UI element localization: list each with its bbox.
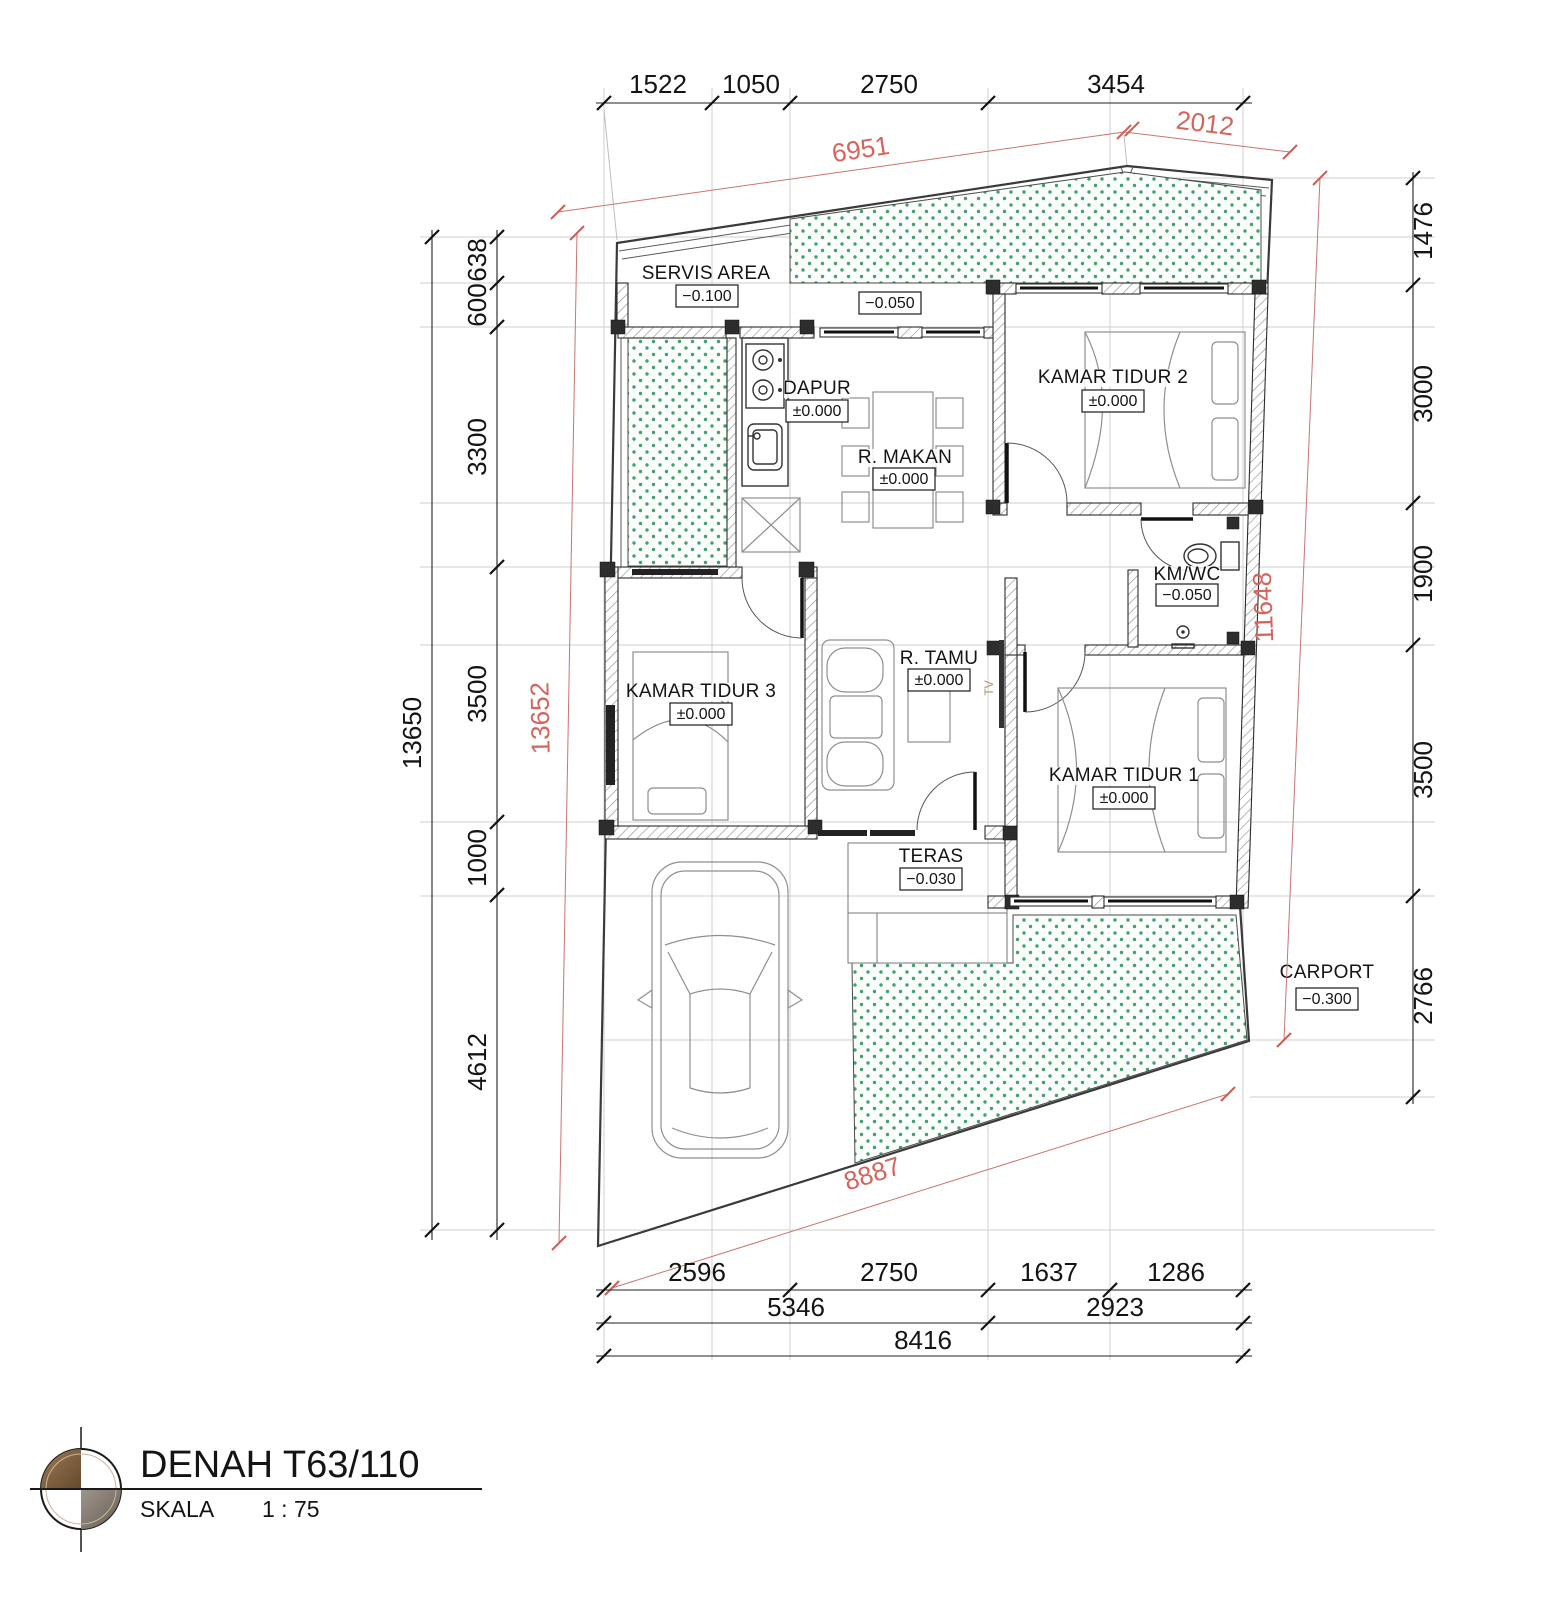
scale-value: 1 : 75	[262, 1496, 320, 1522]
svg-text:1476: 1476	[1408, 202, 1438, 260]
svg-text:2766: 2766	[1408, 967, 1438, 1025]
svg-text:±0.000: ±0.000	[880, 471, 929, 488]
window	[606, 705, 615, 785]
svg-text:1900: 1900	[1408, 545, 1438, 603]
label-teras: TERAS −0.030	[899, 846, 964, 890]
svg-text:−0.100: −0.100	[682, 288, 731, 305]
svg-text:3300: 3300	[462, 418, 492, 476]
garden-courtyard	[628, 338, 727, 566]
threshold-bar	[870, 830, 915, 836]
label-kamar-tidur-3: KAMAR TIDUR 3 ±0.000	[626, 681, 776, 725]
svg-text:KAMAR TIDUR 1: KAMAR TIDUR 1	[1049, 765, 1199, 786]
svg-text:DAPUR: DAPUR	[783, 378, 851, 399]
svg-text:3000: 3000	[1408, 365, 1438, 423]
svg-text:KAMAR TIDUR 3: KAMAR TIDUR 3	[626, 681, 776, 702]
drawing-title: DENAH T63/110	[140, 1444, 420, 1486]
label-servis-area: SERVIS AREA −0.100	[642, 263, 771, 307]
svg-text:−0.050: −0.050	[865, 295, 914, 312]
window	[922, 328, 984, 337]
svg-text:1286: 1286	[1147, 1257, 1205, 1287]
door-bedroom2	[1007, 443, 1067, 503]
svg-text:638: 638	[462, 238, 492, 281]
svg-text:1522: 1522	[629, 69, 687, 99]
svg-text:3500: 3500	[1408, 741, 1438, 799]
label-r-tamu: R. TAMU ±0.000	[898, 648, 980, 691]
svg-text:−0.030: −0.030	[906, 871, 955, 888]
title-block: DENAH T63/110 SKALA 1 : 75	[30, 1427, 482, 1552]
scale-label: SKALA	[140, 1496, 215, 1522]
sofa-set	[822, 640, 894, 790]
floor-plan-drawing: TV SERVIS AREA −0.100	[0, 0, 1555, 1599]
door-main-entry	[917, 772, 975, 830]
garden-bottom	[852, 915, 1247, 1163]
svg-text:2012: 2012	[1175, 105, 1236, 142]
car	[638, 862, 802, 1158]
svg-text:3454: 3454	[1087, 69, 1145, 99]
door-bedroom3	[742, 578, 802, 638]
dimension-chain-left: 13650 638 600 3300 3500 1000 4612 13652	[397, 226, 584, 1250]
svg-text:±0.000: ±0.000	[677, 706, 726, 723]
label-kamar-tidur-1: KAMAR TIDUR 1 ±0.000	[1049, 765, 1199, 809]
svg-text:4612: 4612	[462, 1033, 492, 1091]
label-side-yard: −0.050	[859, 292, 921, 314]
svg-text:CARPORT: CARPORT	[1280, 962, 1375, 983]
svg-text:13652: 13652	[524, 682, 555, 755]
garden-top	[790, 172, 1261, 283]
kitchen-counter	[742, 338, 788, 486]
svg-text:−0.050: −0.050	[1162, 587, 1211, 604]
svg-text:±0.000: ±0.000	[915, 672, 964, 689]
svg-text:6951: 6951	[830, 130, 892, 168]
svg-text:R. TAMU: R. TAMU	[900, 648, 978, 669]
svg-text:8416: 8416	[894, 1325, 952, 1355]
svg-text:5346: 5346	[767, 1292, 825, 1322]
svg-text:TERAS: TERAS	[899, 846, 964, 867]
svg-text:1050: 1050	[722, 69, 780, 99]
window	[1104, 897, 1216, 906]
svg-text:SERVIS AREA: SERVIS AREA	[642, 263, 771, 284]
svg-text:±0.000: ±0.000	[793, 403, 842, 420]
coffee-table	[908, 690, 950, 742]
window	[1140, 284, 1228, 293]
threshold-bar	[632, 569, 718, 575]
threshold-bar	[818, 830, 867, 836]
svg-text:1637: 1637	[1020, 1257, 1078, 1287]
svg-text:2596: 2596	[668, 1257, 726, 1287]
svg-text:R. MAKAN: R. MAKAN	[858, 447, 952, 468]
svg-text:−0.300: −0.300	[1302, 991, 1351, 1008]
svg-text:KM/WC: KM/WC	[1154, 564, 1221, 585]
tv-label: TV	[982, 680, 996, 695]
svg-text:1000: 1000	[462, 829, 492, 887]
svg-text:13650: 13650	[397, 697, 427, 769]
window	[1010, 897, 1092, 906]
shaft-box	[742, 498, 800, 552]
bed-bedroom3	[633, 652, 728, 820]
dimension-chain-top: 1522 1050 2750 3454	[596, 69, 1252, 110]
svg-text:8887: 8887	[840, 1150, 904, 1196]
svg-text:KAMAR TIDUR 2: KAMAR TIDUR 2	[1038, 367, 1188, 388]
svg-text:2750: 2750	[860, 1257, 918, 1287]
window	[820, 328, 898, 337]
label-km-wc: KM/WC −0.050	[1154, 564, 1221, 606]
label-carport: CARPORT −0.300	[1280, 962, 1375, 1010]
svg-text:±0.000: ±0.000	[1089, 393, 1138, 410]
svg-text:±0.000: ±0.000	[1100, 790, 1149, 807]
svg-text:3500: 3500	[462, 665, 492, 723]
window	[1016, 284, 1102, 293]
door-bedroom1	[1025, 652, 1085, 712]
label-r-makan: R. MAKAN ±0.000	[858, 447, 952, 490]
svg-text:11648: 11648	[1247, 572, 1279, 643]
svg-text:2923: 2923	[1086, 1292, 1144, 1322]
svg-text:600: 600	[462, 283, 492, 326]
svg-text:2750: 2750	[860, 69, 918, 99]
floor-plan-page: TV SERVIS AREA −0.100	[0, 0, 1555, 1599]
label-dapur: DAPUR ±0.000	[783, 378, 851, 422]
